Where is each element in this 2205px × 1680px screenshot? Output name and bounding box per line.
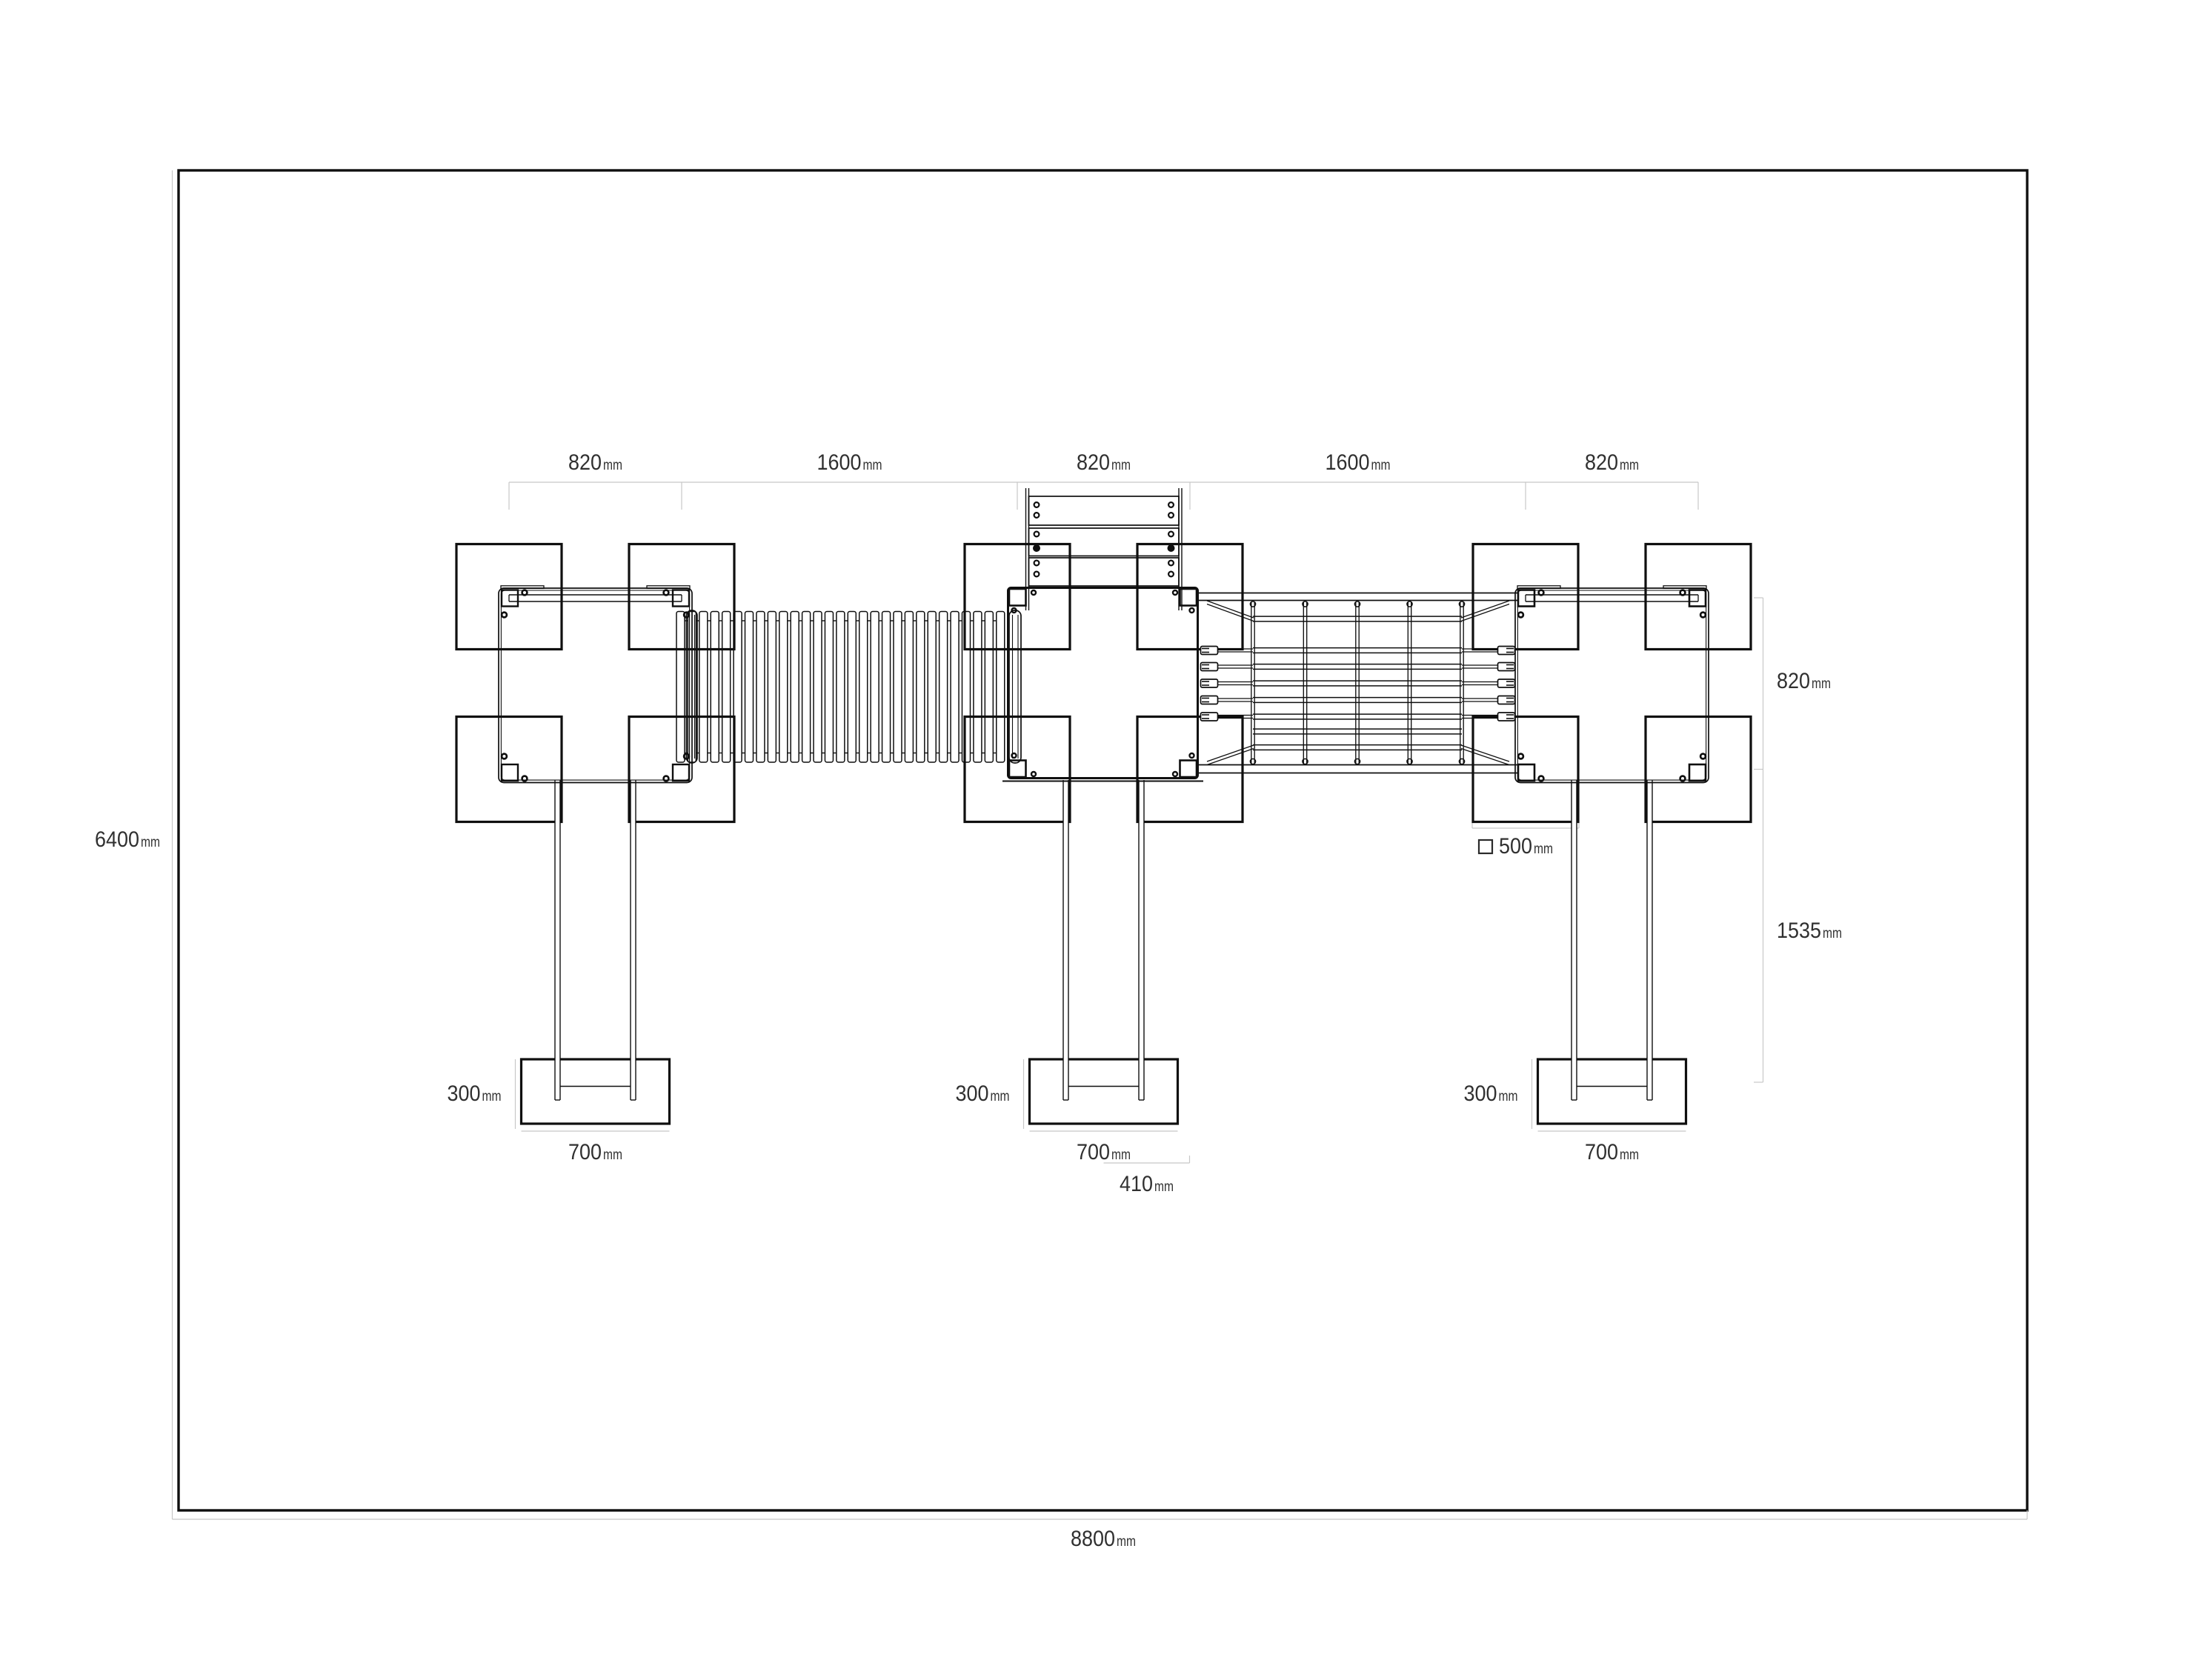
svg-text:mm: mm	[1823, 925, 1842, 941]
svg-text:1600: 1600	[817, 450, 862, 475]
svg-text:mm: mm	[482, 1088, 502, 1104]
svg-text:mm: mm	[603, 457, 622, 473]
svg-text:700: 700	[1585, 1140, 1618, 1164]
svg-text:mm: mm	[1620, 457, 1639, 473]
svg-text:300: 300	[956, 1081, 989, 1106]
svg-text:mm: mm	[1812, 676, 1831, 692]
svg-text:300: 300	[448, 1081, 481, 1106]
svg-text:mm: mm	[863, 457, 882, 473]
svg-text:mm: mm	[141, 834, 160, 850]
svg-text:mm: mm	[1620, 1147, 1639, 1163]
svg-text:820: 820	[568, 450, 602, 475]
svg-text:700: 700	[568, 1140, 602, 1164]
svg-text:mm: mm	[603, 1147, 622, 1163]
svg-text:6400: 6400	[95, 827, 139, 852]
svg-text:500: 500	[1499, 834, 1532, 859]
svg-text:410: 410	[1120, 1172, 1153, 1196]
svg-text:300: 300	[1464, 1081, 1497, 1106]
svg-text:mm: mm	[1111, 1147, 1131, 1163]
svg-text:mm: mm	[1117, 1533, 1136, 1550]
svg-text:mm: mm	[1111, 457, 1131, 473]
svg-text:1600: 1600	[1326, 450, 1370, 475]
svg-text:820: 820	[1077, 450, 1110, 475]
svg-text:700: 700	[1077, 1140, 1110, 1164]
svg-text:1535: 1535	[1777, 919, 1821, 943]
svg-text:mm: mm	[1534, 841, 1553, 857]
svg-text:mm: mm	[991, 1088, 1010, 1104]
svg-text:mm: mm	[1371, 457, 1391, 473]
svg-text:8800: 8800	[1071, 1527, 1115, 1551]
svg-text:820: 820	[1585, 450, 1618, 475]
svg-text:mm: mm	[1499, 1088, 1518, 1104]
svg-text:mm: mm	[1154, 1179, 1174, 1195]
svg-text:820: 820	[1777, 669, 1810, 693]
